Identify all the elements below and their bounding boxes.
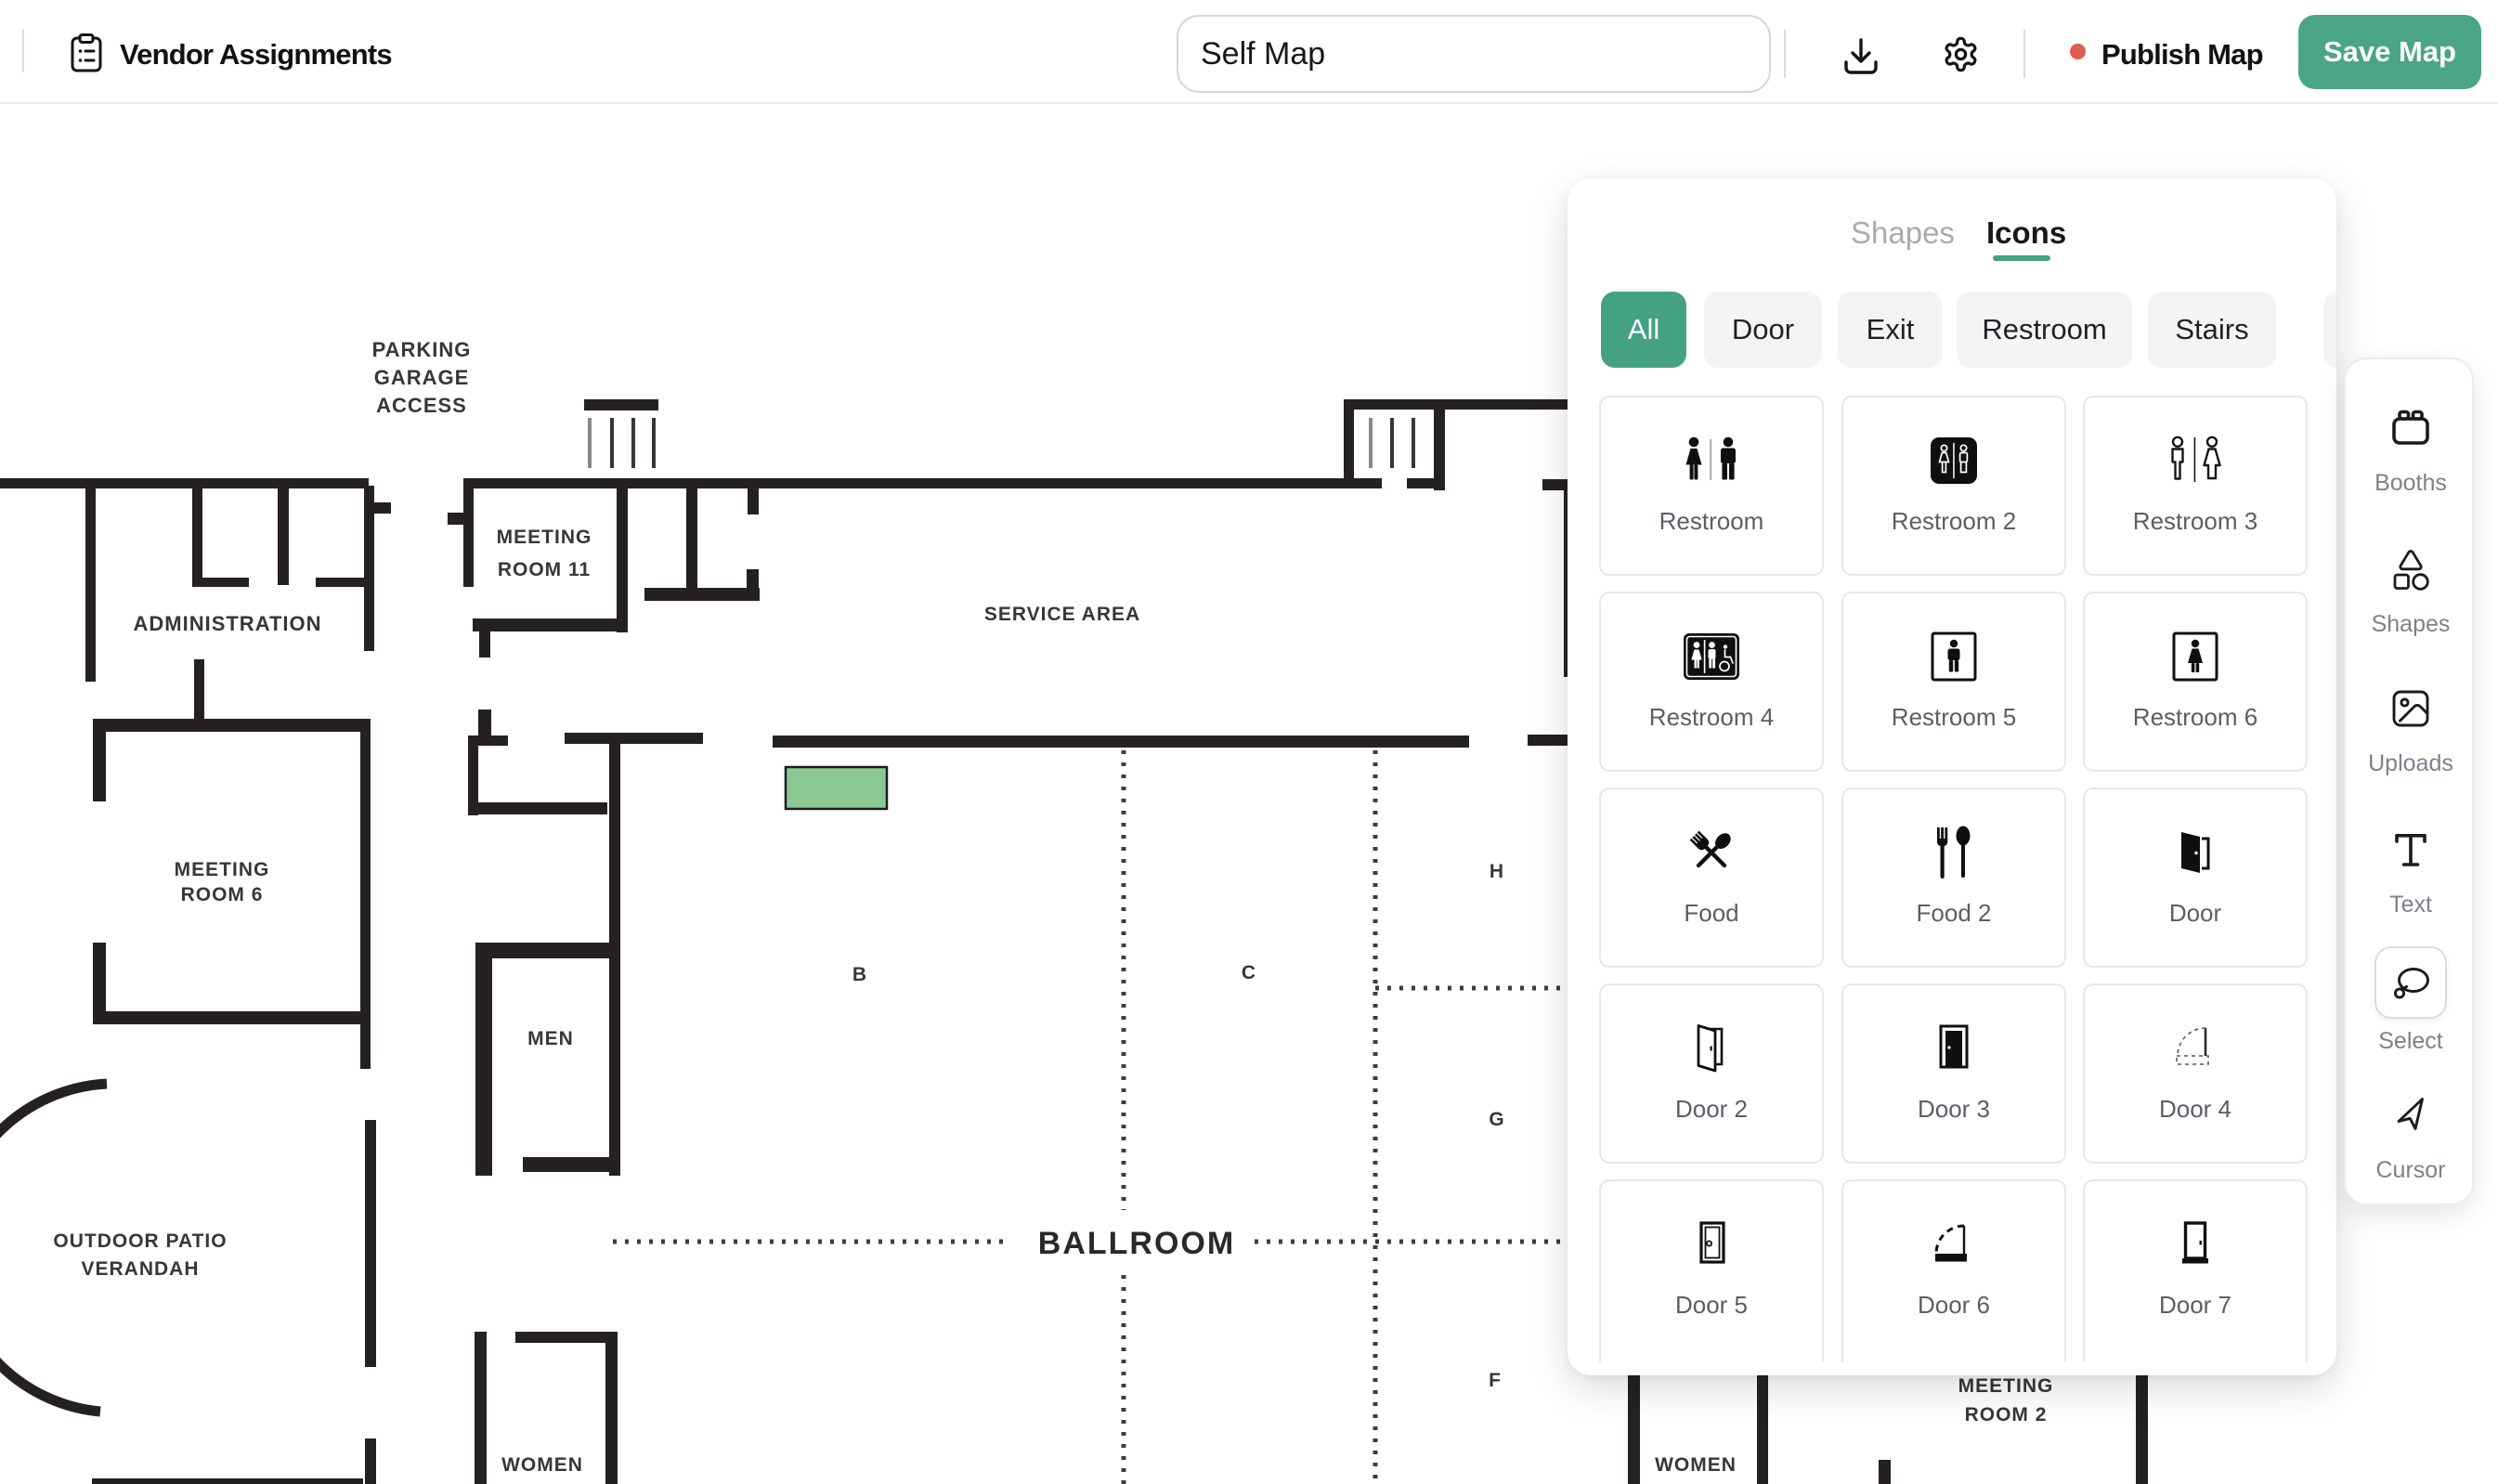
svg-text:SERVICE AREA: SERVICE AREA xyxy=(984,604,1140,625)
svg-text:VERANDAH: VERANDAH xyxy=(81,1258,199,1280)
svg-text:BALLROOM: BALLROOM xyxy=(1038,1226,1235,1261)
svg-text:B: B xyxy=(852,964,867,985)
svg-text:ROOM 2: ROOM 2 xyxy=(1965,1404,2048,1425)
svg-text:ADMINISTRATION: ADMINISTRATION xyxy=(133,612,321,635)
svg-text:F: F xyxy=(1489,1370,1502,1391)
svg-text:C: C xyxy=(1242,962,1256,983)
svg-text:H: H xyxy=(1490,861,1504,882)
svg-text:MEN: MEN xyxy=(527,1028,574,1049)
svg-text:ROOM 6: ROOM 6 xyxy=(181,884,264,905)
svg-text:GARAGE: GARAGE xyxy=(374,366,470,389)
svg-text:MEETING: MEETING xyxy=(1958,1375,2054,1397)
svg-text:G: G xyxy=(1489,1109,1504,1130)
svg-text:ROOM 11: ROOM 11 xyxy=(498,559,591,580)
svg-text:WOMEN: WOMEN xyxy=(1655,1454,1737,1476)
svg-text:OUTDOOR PATIO: OUTDOOR PATIO xyxy=(53,1230,227,1252)
svg-text:WOMEN: WOMEN xyxy=(501,1454,583,1476)
svg-text:MEETING: MEETING xyxy=(175,859,270,880)
svg-text:PARKING: PARKING xyxy=(372,338,472,361)
svg-text:ACCESS: ACCESS xyxy=(376,394,467,417)
svg-text:MEETING: MEETING xyxy=(497,527,592,548)
